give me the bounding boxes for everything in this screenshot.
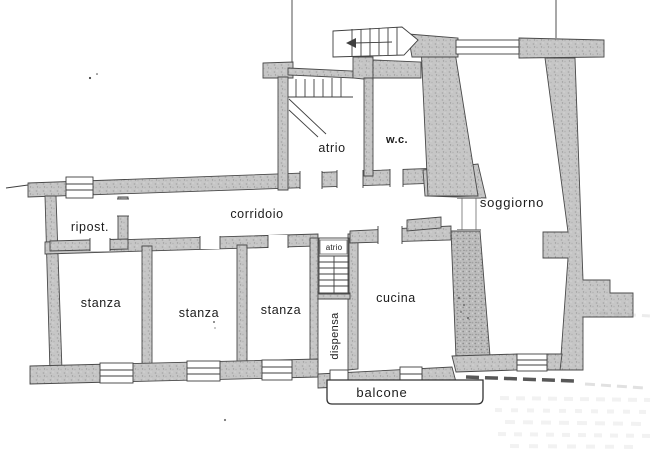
- label-wc: w.c.: [385, 134, 408, 146]
- window-stanza3: [262, 360, 292, 380]
- wall-speckle: [467, 317, 469, 319]
- label-ripostiglio: ripost.: [71, 220, 109, 234]
- wall-soggiorno-bottom: [452, 354, 517, 372]
- label-stanza-2: stanza: [179, 306, 219, 320]
- wall-divider-stanza1-2: [142, 246, 152, 369]
- door-soggiorno: [457, 197, 481, 231]
- wall-atrio-wc-divider: [364, 78, 373, 176]
- wall-soggiorno-bottom-right: [547, 354, 562, 370]
- label-corridoio: corridoio: [230, 207, 283, 221]
- door-wc: [390, 169, 403, 187]
- label-soggiorno: soggiorno: [480, 195, 544, 210]
- door-cucina: [378, 226, 402, 244]
- wall-ripost-bottom: [50, 239, 128, 251]
- door-atrio: [300, 171, 322, 189]
- window-soggiorno-bottom: [517, 354, 547, 371]
- window-ripost: [66, 177, 93, 198]
- label-cucina: cucina: [376, 291, 416, 305]
- label-stanza-1: stanza: [81, 296, 121, 310]
- wall-speckle: [463, 304, 465, 306]
- label-atrio: atrio: [318, 141, 345, 155]
- wall-speckle: [460, 311, 462, 313]
- scan-speck: [214, 327, 215, 328]
- label-balcone: balcone: [356, 385, 407, 400]
- wall-speckle: [469, 295, 471, 297]
- window-stanza2: [187, 361, 220, 381]
- window-stanza1: [100, 363, 133, 383]
- door-stair: [337, 170, 363, 188]
- wall-atrio-small-left: [310, 238, 318, 368]
- door-stanza2: [200, 236, 220, 249]
- floor-plan-canvas: ripost. corridoio atrio w.c. soggiorno s…: [0, 0, 653, 464]
- door-stanza3: [268, 235, 288, 248]
- label-dispensa: dispensa: [329, 312, 341, 360]
- wall-atrio-left: [278, 77, 288, 190]
- door-ripost: [117, 199, 129, 216]
- wall-wc-top: [373, 60, 421, 78]
- wall-stair-joint: [353, 57, 373, 80]
- label-stanza-3: stanza: [261, 303, 301, 317]
- label-atrio-small: atrio: [326, 243, 343, 252]
- door-stanza1: [90, 238, 110, 251]
- scan-speck: [89, 77, 91, 79]
- wall-divider-stanza2-3: [237, 245, 247, 366]
- scan-speck: [96, 73, 98, 75]
- wall-cucina-top-step: [407, 217, 441, 231]
- wall-top-right: [519, 38, 604, 58]
- scan-speck: [213, 321, 215, 323]
- scan-speck: [224, 419, 226, 421]
- wall-speckle: [458, 297, 460, 299]
- wall-cucina-left: [348, 234, 358, 370]
